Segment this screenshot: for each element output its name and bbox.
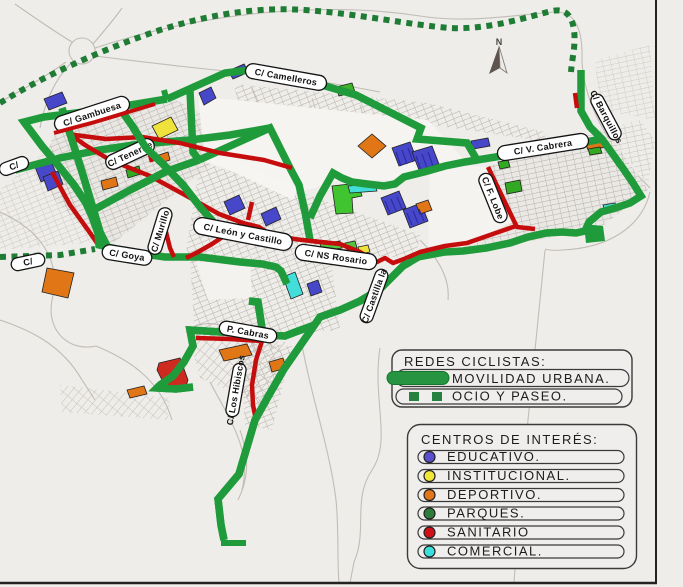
svg-text:DEPORTIVO.: DEPORTIVO. [447, 487, 542, 502]
svg-text:SANITARIO: SANITARIO [447, 525, 530, 540]
svg-text:MOVILIDAD URBANA.: MOVILIDAD URBANA. [452, 371, 610, 386]
svg-text:N: N [496, 37, 503, 47]
svg-text:CENTROS DE INTERÉS:: CENTROS DE INTERÉS: [421, 432, 598, 447]
svg-text:OCIO Y PASEO.: OCIO Y PASEO. [452, 389, 568, 404]
svg-text:EDUCATIVO.: EDUCATIVO. [447, 449, 541, 464]
svg-text:REDES CICLISTAS:: REDES CICLISTAS: [404, 354, 546, 369]
svg-text:COMERCIAL.: COMERCIAL. [447, 544, 543, 559]
svg-text:INSTITUCIONAL.: INSTITUCIONAL. [447, 468, 571, 483]
svg-text:PARQUES.: PARQUES. [447, 506, 525, 521]
